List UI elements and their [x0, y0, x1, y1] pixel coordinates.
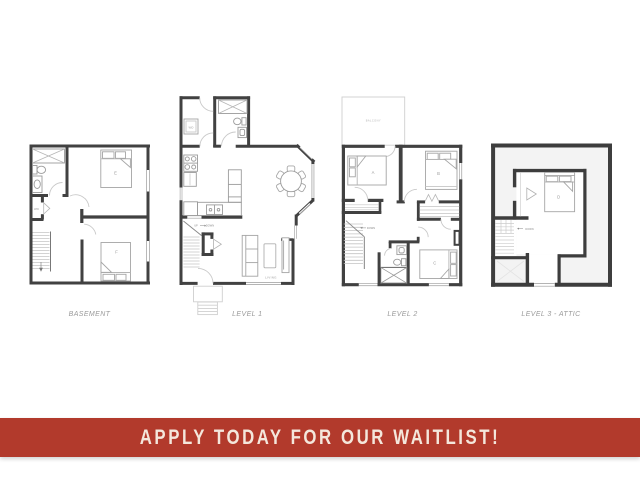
svg-text:DOWN: DOWN: [525, 227, 533, 231]
svg-text:BASEMENT: BASEMENT: [69, 311, 111, 318]
svg-text:LIVING: LIVING: [265, 276, 277, 280]
svg-text:D: D: [557, 195, 560, 200]
svg-text:DOWN: DOWN: [367, 226, 375, 230]
svg-text:B: B: [437, 171, 440, 176]
svg-text:F: F: [115, 250, 118, 255]
svg-text:E: E: [114, 171, 117, 176]
svg-text:W/D: W/D: [34, 207, 39, 211]
svg-text:LEVEL 1: LEVEL 1: [232, 311, 262, 318]
svg-text:LEVEL 2: LEVEL 2: [387, 311, 417, 318]
svg-text:UP: UP: [194, 224, 198, 228]
svg-text:DOWN: DOWN: [206, 224, 214, 228]
svg-text:A: A: [372, 170, 375, 175]
svg-text:W/D: W/D: [189, 126, 194, 129]
svg-text:LEVEL 3 - ATTIC: LEVEL 3 - ATTIC: [521, 311, 581, 318]
svg-text:C: C: [433, 261, 436, 266]
svg-text:BALCONY: BALCONY: [366, 119, 381, 123]
